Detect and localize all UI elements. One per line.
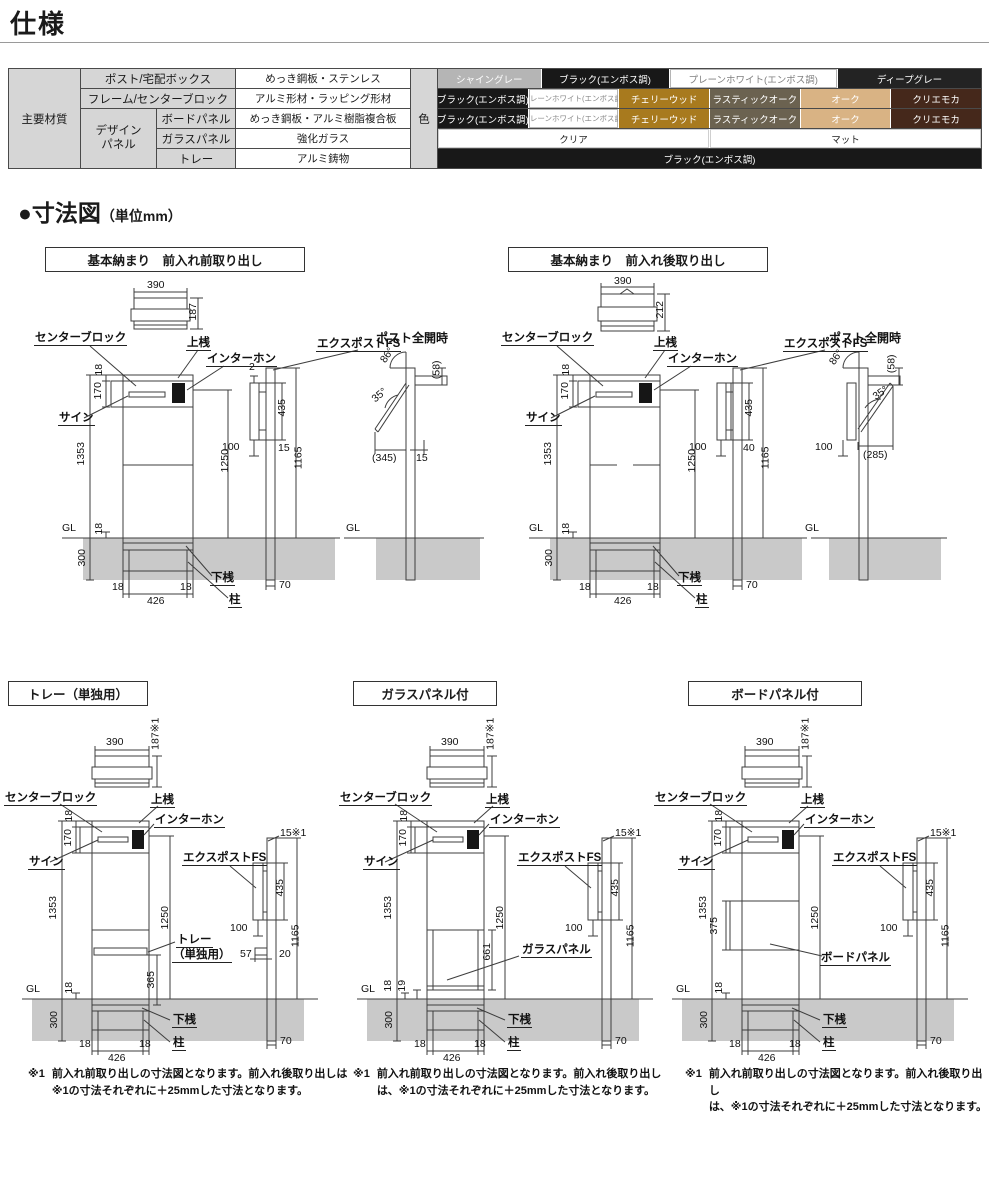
footnote-mark: ※1 xyxy=(353,1066,370,1099)
dim-label: 20 xyxy=(279,949,291,961)
footnote-text: 前入れ前取り出しの寸法図となります。前入れ後取り出しは、※1の寸法それぞれに＋2… xyxy=(377,1066,662,1099)
dim-label: 15 xyxy=(278,443,290,455)
dim-label: 70 xyxy=(930,1036,942,1048)
dim-label: 100 xyxy=(230,923,248,935)
color-swatch: マット xyxy=(710,129,981,148)
dim-label: 1165 xyxy=(761,446,773,469)
dim-label: 18 xyxy=(561,364,573,376)
table-row: デザイン パネル ボードパネル めっき鋼板・アルミ樹脂複合板 ブラック(エンボス… xyxy=(9,109,982,129)
part-label: インターホン xyxy=(667,353,738,367)
material-cell: めっき鋼板・アルミ樹脂複合板 xyxy=(236,109,411,129)
footnote-2: ※1 前入れ前取り出しの寸法図となります。前入れ後取り出しは、※1の寸法それぞれ… xyxy=(353,1066,675,1099)
dim-label: 1165 xyxy=(626,924,638,947)
dim-label: 390 xyxy=(756,737,774,749)
footnote-mark: ※1 xyxy=(28,1066,45,1099)
dim-label: (58) xyxy=(432,360,444,379)
dim-label: 435 xyxy=(925,879,937,897)
dim-label: 18 xyxy=(714,982,726,994)
diagram-basic-front-out: 390187センターブロック上桟インターホンサイン181701353183001… xyxy=(28,280,488,620)
part-label: インターホン xyxy=(154,814,225,828)
dim-label: GL xyxy=(346,523,360,535)
part-label: 下桟 xyxy=(822,1014,847,1028)
part-label: センターブロック xyxy=(34,332,127,346)
footnote-1: ※1 前入れ前取り出しの寸法図となります。前入れ後取り出しは※1の寸法それぞれに… xyxy=(28,1066,350,1099)
dim-label: 170 xyxy=(713,829,725,847)
dim-label: 435 xyxy=(744,399,756,417)
diagram-subtitle: ポスト全開時 xyxy=(376,332,448,345)
dim-label: 18 xyxy=(112,582,124,594)
dim-label: 100 xyxy=(222,442,240,454)
color-swatch: プレーンホワイト(エンボス調) xyxy=(670,69,837,88)
section-title: ●寸法図 xyxy=(18,194,101,228)
dim-label: 18 xyxy=(180,582,192,594)
part-label: サイン xyxy=(58,412,95,426)
part-label: 柱 xyxy=(507,1037,521,1051)
dim-label: 187※1 xyxy=(800,718,812,750)
dim-label: 18 xyxy=(79,1039,91,1051)
footnote-mark: ※1 xyxy=(685,1066,702,1116)
divider xyxy=(0,42,989,43)
dim-label: 390 xyxy=(106,737,124,749)
dim-label: 300 xyxy=(77,549,89,567)
diagram-title-2: 基本納まり 前入れ後取り出し xyxy=(508,247,768,272)
part-label: ボードパネル xyxy=(820,952,891,966)
dim-label: 300 xyxy=(699,1011,711,1029)
dim-label: 390 xyxy=(147,280,165,292)
dim-label: 18 xyxy=(94,523,106,535)
color-swatch: チェリーウッド xyxy=(619,109,709,128)
diagram-glass-panel: 390187※1センターブロック上桟インターホンサイン1817013531250… xyxy=(337,690,667,1080)
dim-label: 18 xyxy=(64,982,76,994)
material-cell: めっき鋼板・ステンレス xyxy=(236,69,411,89)
dim-label: 100 xyxy=(815,442,833,454)
color-swatch: ラスティックオーク xyxy=(710,109,800,128)
dim-label: 426 xyxy=(443,1053,461,1065)
color-swatch: ラスティックオーク xyxy=(710,89,800,108)
dim-label: GL xyxy=(676,984,690,996)
diagram-board-panel: 390187※1センターブロック上桟インターホンサイン1817013533751… xyxy=(652,690,987,1080)
color-row-board: ブラック(エンボス調) プレーンホワイト(エンボス調) チェリーウッド ラスティ… xyxy=(438,109,982,129)
dim-label: 187※1 xyxy=(150,718,162,750)
part-label: 上桟 xyxy=(653,337,678,351)
main-material-header: 主要材質 xyxy=(9,69,81,169)
part-label: 柱 xyxy=(822,1037,836,1051)
part-label: （単独用） xyxy=(172,949,232,963)
part-label: エクスポストFS xyxy=(517,852,602,866)
dim-label: 18 xyxy=(383,980,395,992)
dim-label: 18 xyxy=(399,810,411,822)
color-swatch: クリエモカ xyxy=(891,89,981,108)
part-label: トレー xyxy=(176,934,213,948)
dim-label: 300 xyxy=(49,1011,61,1029)
dim-label: 15※1 xyxy=(615,828,641,840)
part-label: 上桟 xyxy=(186,337,211,351)
diagram-title-1: 基本納まり 前入れ前取り出し xyxy=(45,247,305,272)
dim-label: 1165 xyxy=(291,924,303,947)
dim-label: 170 xyxy=(63,829,75,847)
dim-label: (58) xyxy=(887,354,899,373)
color-swatch: シャイングレー xyxy=(438,69,541,88)
dim-label: 187※1 xyxy=(485,718,497,750)
dim-label: 18 xyxy=(647,582,659,594)
row-label: フレーム/センターブロック xyxy=(81,89,236,109)
dim-label: 1353 xyxy=(48,896,60,919)
dim-label: 426 xyxy=(108,1053,126,1065)
material-cell: 強化ガラス xyxy=(236,129,411,149)
dim-label: 18 xyxy=(139,1039,151,1051)
dim-label: 18 xyxy=(561,523,573,535)
part-label: 下桟 xyxy=(172,1014,197,1028)
color-row-frame: ブラック(エンボス調) プレーンホワイト(エンボス調) チェリーウッド ラスティ… xyxy=(438,89,982,109)
part-label: インターホン xyxy=(489,814,560,828)
material-cell: アルミ形材・ラッピング形材 xyxy=(236,89,411,109)
part-label: 柱 xyxy=(172,1037,186,1051)
table-row: 主要材質 ポスト/宅配ボックス めっき鋼板・ステンレス 色 シャイングレー ブラ… xyxy=(9,69,982,89)
dim-label: GL xyxy=(805,523,819,535)
part-label: 柱 xyxy=(228,594,242,608)
part-label: サイン xyxy=(363,856,400,870)
diagram-tray: 390187※1センターブロック上桟インターホンサイン1817013531250… xyxy=(2,690,332,1080)
dim-label: 1250 xyxy=(160,906,172,929)
dim-label: GL xyxy=(529,523,543,535)
color-row-tray: ブラック(エンボス調) xyxy=(438,149,982,169)
dim-label: 40 xyxy=(743,443,755,455)
part-label: センターブロック xyxy=(4,792,97,806)
color-swatch: プレーンホワイト(エンボス調) xyxy=(529,89,619,108)
spec-table: 主要材質 ポスト/宅配ボックス めっき鋼板・ステンレス 色 シャイングレー ブラ… xyxy=(8,68,982,169)
part-label: センターブロック xyxy=(654,792,747,806)
dim-label: 170 xyxy=(93,382,105,400)
dim-label: 100 xyxy=(880,923,898,935)
part-label: 上桟 xyxy=(150,794,175,808)
color-header: 色 xyxy=(411,69,438,169)
dim-label: 18 xyxy=(94,364,106,376)
table-row: フレーム/センターブロック アルミ形材・ラッピング形材 ブラック(エンボス調) … xyxy=(9,89,982,109)
dim-label: 19 xyxy=(397,980,409,992)
page-title: 仕様 xyxy=(10,4,66,41)
color-swatch: ディープグレー xyxy=(838,69,981,88)
dim-label: 70 xyxy=(280,1036,292,1048)
color-swatch: ブラック(エンボス調) xyxy=(438,109,528,128)
part-label: ガラスパネル xyxy=(521,944,592,958)
dim-label: 375 xyxy=(709,917,721,935)
dim-label: 390 xyxy=(614,276,632,288)
section-heading: ●寸法図 （単位mm） xyxy=(18,194,182,228)
color-swatch: クリア xyxy=(438,129,709,148)
dim-label: 70 xyxy=(615,1036,627,1048)
color-swatch: ブラック(エンボス調) xyxy=(542,69,669,88)
dim-label: 1165 xyxy=(294,446,306,469)
color-row-glass: クリア マット xyxy=(438,129,982,149)
part-label: 上桟 xyxy=(485,794,510,808)
dim-label: (285) xyxy=(863,450,888,462)
dim-label: 1353 xyxy=(543,442,555,465)
material-cell: アルミ鋳物 xyxy=(236,149,411,169)
dim-label: 365 xyxy=(146,971,158,989)
footnote-text: 前入れ前取り出しの寸法図となります。前入れ後取り出しは※1の寸法それぞれに＋25… xyxy=(52,1066,348,1099)
color-row-post: シャイングレー ブラック(エンボス調) プレーンホワイト(エンボス調) ディープ… xyxy=(438,69,982,89)
design-panel-group: デザイン パネル xyxy=(81,109,157,169)
dim-label: 1353 xyxy=(76,442,88,465)
footnote-3: ※1 前入れ前取り出しの寸法図となります。前入れ後取り出しは、※1の寸法それぞれ… xyxy=(685,1066,987,1116)
part-label: インターホン xyxy=(206,353,277,367)
part-label: サイン xyxy=(28,856,65,870)
part-label: インターホン xyxy=(804,814,875,828)
part-label: センターブロック xyxy=(339,792,432,806)
dim-label: 435 xyxy=(275,879,287,897)
part-label: サイン xyxy=(678,856,715,870)
dim-label: 300 xyxy=(544,549,556,567)
dim-label: 426 xyxy=(147,596,165,608)
row-label: トレー xyxy=(157,149,236,169)
part-label: エクスポストFS xyxy=(182,852,267,866)
dim-label: 57 xyxy=(240,949,252,961)
dim-label: 18 xyxy=(579,582,591,594)
dim-label: 170 xyxy=(560,382,572,400)
row-label: ガラスパネル xyxy=(157,129,236,149)
dim-label: 100 xyxy=(565,923,583,935)
diagram-basic-rear-out: 390212センターブロック上桟インターホンサイン181701353183001… xyxy=(495,280,989,620)
color-swatch: ブラック(エンボス調) xyxy=(438,89,528,108)
color-swatch: クリエモカ xyxy=(891,109,981,128)
part-label: 上桟 xyxy=(800,794,825,808)
footnote-text: 前入れ前取り出しの寸法図となります。前入れ後取り出しは、※1の寸法それぞれに＋2… xyxy=(709,1066,987,1116)
dim-label: 15※1 xyxy=(930,828,956,840)
dim-label: 1250 xyxy=(495,906,507,929)
dim-label: 1353 xyxy=(383,896,395,919)
dim-label: 18 xyxy=(474,1039,486,1051)
dim-label: 18 xyxy=(714,810,726,822)
part-label: 柱 xyxy=(695,594,709,608)
row-label: ポスト/宅配ボックス xyxy=(81,69,236,89)
dim-label: 435 xyxy=(277,399,289,417)
diagram-subtitle: ポスト全開時 xyxy=(829,332,901,345)
dim-label: (345) xyxy=(372,453,397,465)
dim-label: 18 xyxy=(729,1039,741,1051)
part-label: エクスポストFS xyxy=(832,852,917,866)
dim-label: 18 xyxy=(414,1039,426,1051)
dim-label: 18 xyxy=(789,1039,801,1051)
dim-label: 435 xyxy=(610,879,622,897)
dim-label: 18 xyxy=(64,810,76,822)
color-swatch: オーク xyxy=(801,109,891,128)
dim-label: 187 xyxy=(188,303,200,321)
dim-label: 212 xyxy=(655,301,667,319)
part-label: サイン xyxy=(525,412,562,426)
dim-label: 15 xyxy=(416,453,428,465)
dim-label: 70 xyxy=(279,580,291,592)
dim-label: 100 xyxy=(689,442,707,454)
dim-label: 1250 xyxy=(810,906,822,929)
part-label: 下桟 xyxy=(677,572,702,586)
dim-label: 426 xyxy=(614,596,632,608)
color-swatch: プレーンホワイト(エンボス調) xyxy=(529,109,619,128)
dim-label: 1165 xyxy=(941,924,953,947)
dim-label: 390 xyxy=(441,737,459,749)
dim-label: GL xyxy=(361,984,375,996)
dim-label: 661 xyxy=(482,943,494,961)
dim-label: GL xyxy=(26,984,40,996)
dim-label: 15※1 xyxy=(280,828,306,840)
dim-label: 70 xyxy=(746,580,758,592)
dim-label: GL xyxy=(62,523,76,535)
part-label: 下桟 xyxy=(507,1014,532,1028)
dim-label: 300 xyxy=(384,1011,396,1029)
dim-label: 426 xyxy=(758,1053,776,1065)
color-swatch: チェリーウッド xyxy=(619,89,709,108)
dim-label: 170 xyxy=(398,829,410,847)
dim-label: 2 xyxy=(249,362,255,374)
color-swatch: オーク xyxy=(801,89,891,108)
part-label: センターブロック xyxy=(501,332,594,346)
color-swatch: ブラック(エンボス調) xyxy=(438,149,981,168)
part-label: 下桟 xyxy=(210,572,235,586)
diagram-linework xyxy=(495,280,989,620)
row-label: ボードパネル xyxy=(157,109,236,129)
section-unit: （単位mm） xyxy=(101,206,182,226)
